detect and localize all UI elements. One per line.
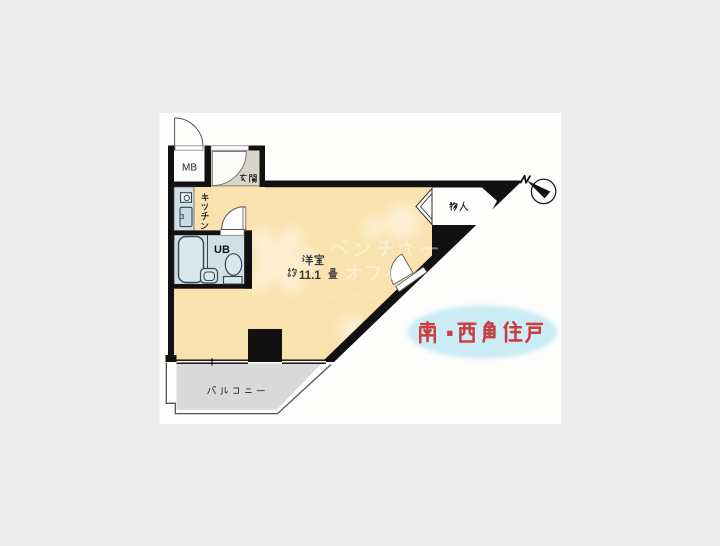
svg-text:UB: UB — [214, 244, 230, 256]
svg-text:11.1: 11.1 — [299, 270, 321, 282]
svg-text:VENTURE: VENTURE — [327, 292, 380, 304]
svg-text:MB: MB — [182, 163, 197, 174]
